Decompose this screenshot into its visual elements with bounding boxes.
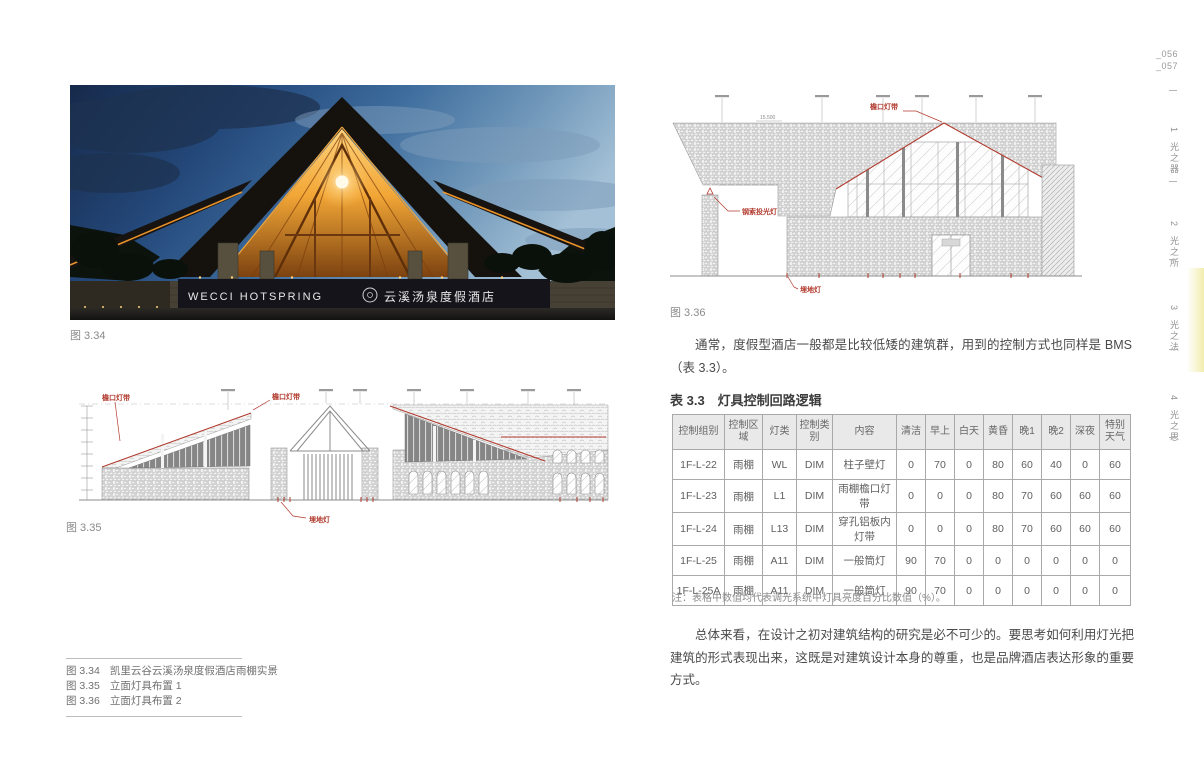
table-cell: 60 bbox=[1100, 480, 1131, 513]
chapter-number: 4 bbox=[1169, 395, 1179, 402]
table-cell: 雨棚 bbox=[725, 450, 763, 480]
chapter-highlight-marker bbox=[1187, 268, 1204, 372]
table-cell: 0 bbox=[1100, 546, 1131, 576]
table-cell: 0 bbox=[897, 513, 926, 546]
tab-separator bbox=[1169, 90, 1177, 91]
floodlight-symbol bbox=[707, 188, 713, 194]
sign-text-cn: 云溪汤泉度假酒店 bbox=[384, 289, 496, 304]
table-cell: 雨棚檐口灯带 bbox=[833, 480, 897, 513]
label-eave-center: 檐口灯带 bbox=[272, 392, 300, 401]
table-cell: 雨棚 bbox=[725, 480, 763, 513]
table-cell: 60 bbox=[1071, 480, 1100, 513]
table-cell: 0 bbox=[926, 480, 955, 513]
stone-wall bbox=[787, 217, 1042, 276]
table-cell: 1F-L-23 bbox=[673, 480, 725, 513]
table-cell: 0 bbox=[984, 546, 1013, 576]
dimension-text: 15.500 bbox=[760, 115, 776, 121]
paragraph-summary: 总体来看，在设计之初对建筑结构的研究是必不可少的。要思考如何利用灯光把建筑的形式… bbox=[670, 624, 1134, 692]
table-cell: 60 bbox=[1100, 450, 1131, 480]
foreground-road bbox=[70, 308, 615, 320]
table-cell: 0 bbox=[955, 450, 984, 480]
page-number-right: _057 bbox=[1140, 60, 1178, 72]
table-cell: 0 bbox=[1071, 546, 1100, 576]
table-cell: 0 bbox=[955, 480, 984, 513]
col-header: 清洁 bbox=[897, 415, 926, 450]
caption-text: 立面灯具布置 1 bbox=[110, 680, 182, 692]
chapter-label: 光之思 bbox=[1169, 410, 1179, 443]
figure-caption-3-36: 图 3.36 bbox=[670, 304, 705, 320]
chapter-label: 光之所 bbox=[1169, 236, 1179, 269]
elevation-drawing-1: 檐口灯带 檐口灯带 埋地灯 bbox=[65, 388, 610, 526]
hotel-photo: WECCI HOTSPRING 云溪汤泉度假酒店 bbox=[70, 85, 615, 320]
caption-text: 凯里云谷云溪汤泉度假酒店雨棚实景 bbox=[110, 665, 278, 677]
col-header: 晚2 bbox=[1042, 415, 1071, 450]
chapter-number: 3 bbox=[1169, 305, 1179, 312]
table-cell: DIM bbox=[797, 513, 833, 546]
page-number-left: _056 bbox=[1140, 48, 1178, 60]
table-cell: 一般筒灯 bbox=[833, 546, 897, 576]
label-floodlight: 钢索投光灯 bbox=[742, 207, 777, 216]
caption-list-item: 图 3.35立面灯具布置 1 bbox=[66, 679, 242, 694]
table-cell: WL bbox=[763, 450, 797, 480]
table-cell: 60 bbox=[1042, 480, 1071, 513]
table-cell: 0 bbox=[897, 480, 926, 513]
label-eave-left: 檐口灯带 bbox=[102, 393, 130, 402]
caption-text: 立面灯具布置 2 bbox=[110, 695, 182, 707]
label-ground-light: 埋地灯 bbox=[800, 285, 821, 294]
table-cell: A11 bbox=[763, 546, 797, 576]
chapter-number: 2 bbox=[1169, 221, 1179, 228]
table-cell: 1F-L-24 bbox=[673, 513, 725, 546]
col-header: 晚1 bbox=[1013, 415, 1042, 450]
right-wing bbox=[390, 405, 608, 500]
page-numbers: _056 _057 bbox=[1140, 48, 1178, 72]
table-cell: 70 bbox=[1013, 480, 1042, 513]
table-cell: 60 bbox=[1071, 513, 1100, 546]
sign-text-en: WECCI HOTSPRING bbox=[188, 291, 323, 303]
center-gable bbox=[271, 406, 378, 500]
caption-fig-number: 图 3.35 bbox=[66, 680, 100, 692]
chapter-number: 1 bbox=[1169, 127, 1179, 134]
table-cell: 0 bbox=[897, 450, 926, 480]
col-header: 白天 bbox=[955, 415, 984, 450]
left-pier bbox=[702, 185, 778, 276]
caption-list-item: 图 3.34凯里云谷云溪汤泉度假酒店雨棚实景 bbox=[66, 664, 242, 679]
table-title: 表 3.3 灯具控制回路逻辑 bbox=[670, 390, 822, 409]
entrance-slats bbox=[304, 454, 352, 500]
table-cell: 70 bbox=[1013, 513, 1042, 546]
figure-caption-3-35: 图 3.35 bbox=[66, 519, 101, 535]
table-cell: 雨棚 bbox=[725, 513, 763, 546]
table-cell: 0 bbox=[1042, 546, 1071, 576]
table-cell: 60 bbox=[1100, 513, 1131, 546]
caption-list-item: 图 3.36立面灯具布置 2 bbox=[66, 694, 242, 709]
table-row: 1F-L-22 雨棚 WL DIM 柱子壁灯 0 70 0 80 60 40 0… bbox=[673, 450, 1131, 480]
table-cell: L1 bbox=[763, 480, 797, 513]
dimension-stack bbox=[81, 406, 93, 500]
chapter-tab-1: 1光之器 bbox=[1168, 127, 1181, 175]
table-cell: 0 bbox=[1013, 546, 1042, 576]
tab-separator bbox=[1169, 349, 1177, 350]
tab-separator bbox=[1169, 259, 1177, 260]
table-cell: 80 bbox=[984, 480, 1013, 513]
paragraph-bms: 通常，度假型酒店一般都是比较低矮的建筑群，用到的控制方式也同样是 BMS（表 3… bbox=[670, 334, 1132, 379]
tab-separator bbox=[1169, 181, 1177, 182]
col-header: 深夜 bbox=[1071, 415, 1100, 450]
table-row: 1F-L-23 雨棚 L1 DIM 雨棚檐口灯带 0 0 0 80 70 60 … bbox=[673, 480, 1131, 513]
table-cell: 0 bbox=[926, 513, 955, 546]
table-cell: 1F-L-22 bbox=[673, 450, 725, 480]
table-cell: DIM bbox=[797, 480, 833, 513]
col-header: 早上 bbox=[926, 415, 955, 450]
col-header: 内容 bbox=[833, 415, 897, 450]
label-eave: 檐口灯带 bbox=[870, 102, 898, 111]
pendant-lamp bbox=[336, 176, 349, 189]
tab-separator bbox=[1169, 437, 1177, 438]
table-cell: 穿孔铝板内灯带 bbox=[833, 513, 897, 546]
elevation-drawing-2: 15.500 bbox=[670, 85, 1130, 300]
table-cell: 70 bbox=[926, 546, 955, 576]
table-cell: 40 bbox=[1042, 450, 1071, 480]
table-header-row: 控制组别 控制区域 灯类 控制类别 内容 清洁 早上 白天 黄昏 晚1 晚2 深… bbox=[673, 415, 1131, 450]
chapter-tab-4: 4光之思 bbox=[1168, 395, 1181, 443]
table-cell: DIM bbox=[797, 450, 833, 480]
chapter-label: 光之器 bbox=[1169, 142, 1179, 175]
table-note: 注：表格中数值均代表调光系统中灯具亮度百分比数值（%）。 bbox=[672, 589, 1130, 604]
right-retaining-wall bbox=[1042, 165, 1074, 276]
figure-caption-3-34: 图 3.34 bbox=[70, 327, 105, 343]
col-header: 控制区域 bbox=[725, 415, 763, 450]
table-cell: 雨棚 bbox=[725, 546, 763, 576]
label-ground-light: 埋地灯 bbox=[309, 515, 330, 524]
col-header: 灯类 bbox=[763, 415, 797, 450]
table-cell: 80 bbox=[984, 450, 1013, 480]
table-row: 1F-L-24 雨棚 L13 DIM 穿孔铝板内灯带 0 0 0 80 70 6… bbox=[673, 513, 1131, 546]
table-cell: 90 bbox=[897, 546, 926, 576]
col-header: 特别天气 bbox=[1100, 415, 1131, 450]
table-cell: DIM bbox=[797, 546, 833, 576]
table-cell: 0 bbox=[955, 513, 984, 546]
col-header: 控制组别 bbox=[673, 415, 725, 450]
table-cell: 70 bbox=[926, 450, 955, 480]
table-cell: 0 bbox=[955, 546, 984, 576]
table-cell: 0 bbox=[1071, 450, 1100, 480]
caption-list-rule-bottom bbox=[66, 716, 242, 717]
table-cell: 60 bbox=[1042, 513, 1071, 546]
caption-fig-number: 图 3.34 bbox=[66, 665, 100, 677]
table-cell: 80 bbox=[984, 513, 1013, 546]
chapter-tab-3-active: 3光之法 bbox=[1168, 305, 1181, 353]
caption-list: 图 3.34凯里云谷云溪汤泉度假酒店雨棚实景 图 3.35立面灯具布置 1 图 … bbox=[66, 658, 242, 717]
chapter-tab-2: 2光之所 bbox=[1168, 221, 1181, 269]
book-page: WECCI HOTSPRING 云溪汤泉度假酒店 图 3.34 bbox=[0, 0, 1204, 779]
table-cell: L13 bbox=[763, 513, 797, 546]
col-header: 控制类别 bbox=[797, 415, 833, 450]
lighting-control-table: 控制组别 控制区域 灯类 控制类别 内容 清洁 早上 白天 黄昏 晚1 晚2 深… bbox=[672, 414, 1131, 606]
table-row: 1F-L-25 雨棚 A11 DIM 一般筒灯 90 70 0 0 0 0 0 … bbox=[673, 546, 1131, 576]
col-header: 黄昏 bbox=[984, 415, 1013, 450]
left-wing bbox=[102, 413, 251, 500]
table-cell: 60 bbox=[1013, 450, 1042, 480]
table-cell: 柱子壁灯 bbox=[833, 450, 897, 480]
caption-fig-number: 图 3.36 bbox=[66, 695, 100, 707]
table-cell: 1F-L-25 bbox=[673, 546, 725, 576]
